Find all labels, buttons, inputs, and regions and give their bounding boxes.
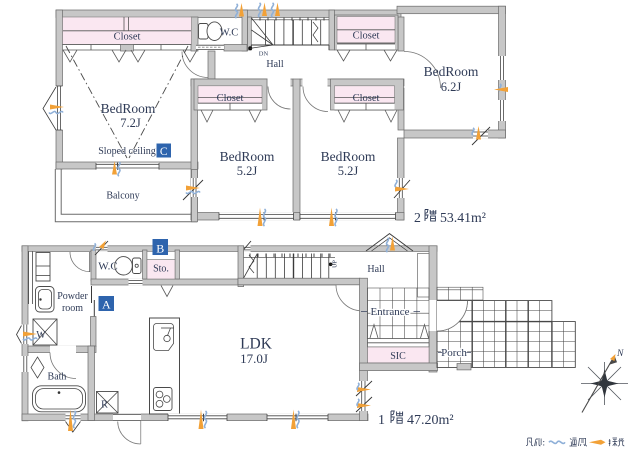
svg-text:Closet: Closet [114, 32, 141, 43]
svg-text:Sto.: Sto. [153, 264, 169, 275]
svg-text:BedRoom: BedRoom [321, 149, 376, 164]
svg-text:B: B [156, 241, 164, 255]
svg-text:Closet: Closet [217, 93, 244, 104]
svg-text::: : [543, 438, 546, 448]
svg-text:Hall: Hall [367, 264, 384, 275]
svg-text:53.41m²: 53.41m² [440, 210, 486, 225]
svg-text:Closet: Closet [353, 31, 380, 42]
svg-text:Entrance: Entrance [370, 306, 409, 318]
svg-text:LDK: LDK [240, 336, 273, 353]
svg-text:Closet: Closet [353, 93, 380, 104]
svg-text:BedRoom: BedRoom [101, 101, 156, 116]
svg-text:W.C: W.C [98, 261, 117, 273]
svg-text:47.20m²: 47.20m² [407, 413, 454, 428]
svg-text:7.2J: 7.2J [120, 116, 141, 130]
svg-text:BedRoom: BedRoom [424, 64, 479, 79]
svg-text:room: room [62, 303, 83, 314]
svg-text:DN: DN [259, 51, 269, 58]
svg-text:2: 2 [414, 210, 421, 225]
svg-text:N: N [616, 349, 624, 359]
svg-text:Balcony: Balcony [106, 191, 139, 202]
svg-text:Porch: Porch [441, 347, 467, 359]
svg-text:Hall: Hall [266, 59, 283, 70]
svg-text:SIC: SIC [390, 351, 406, 362]
svg-text:6.2J: 6.2J [441, 80, 462, 94]
svg-text:Bath: Bath [48, 372, 67, 383]
svg-text:17.0J: 17.0J [240, 351, 268, 366]
svg-text:BedRoom: BedRoom [220, 149, 275, 164]
svg-text:Sloped ceiling: Sloped ceiling [98, 146, 156, 157]
svg-text:A: A [102, 297, 111, 311]
svg-text:C: C [160, 146, 168, 158]
svg-text:5.2J: 5.2J [237, 164, 258, 178]
svg-text:R: R [101, 400, 108, 411]
svg-text:1: 1 [378, 413, 385, 428]
svg-text:Powder: Powder [57, 291, 88, 302]
svg-text:UP: UP [333, 260, 339, 268]
svg-text:W: W [36, 330, 46, 341]
svg-text:W.C: W.C [220, 28, 239, 39]
svg-text:5.2J: 5.2J [338, 164, 359, 178]
